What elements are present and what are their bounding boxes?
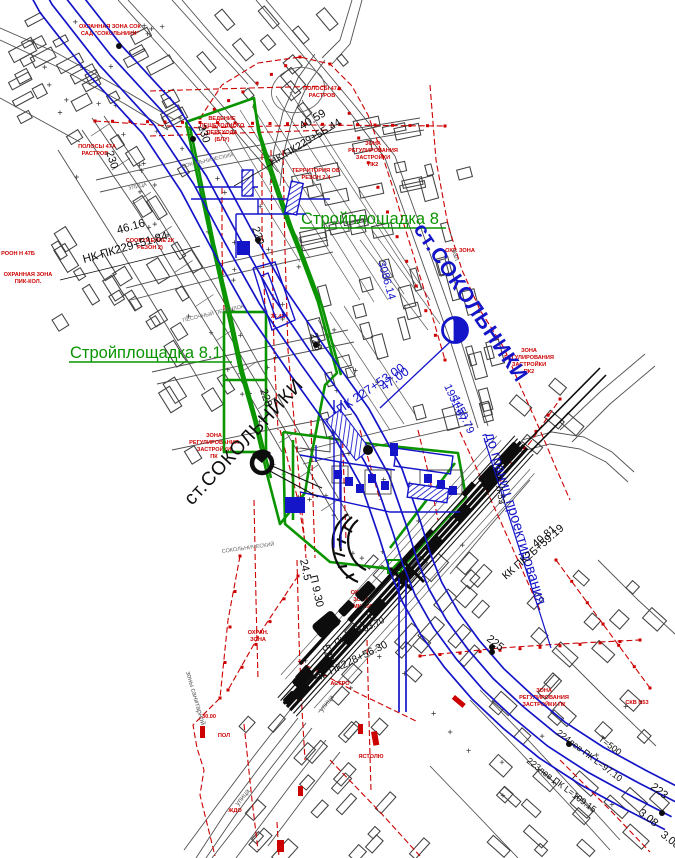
- svg-text:ВЕДЕНИЕ: ВЕДЕНИЕ: [208, 116, 236, 122]
- svg-text:РООН Н 47Б: РООН Н 47Б: [1, 251, 35, 257]
- svg-text:ЗОНА: ЗОНА: [206, 433, 222, 439]
- svg-text:Стройплощадка 8.1: Стройплощадка 8.1: [70, 344, 222, 362]
- svg-text:ЯСТОЛЮ: ЯСТОЛЮ: [358, 754, 383, 760]
- svg-text:РЕГУЛИРОВАНИЯ: РЕГУЛИРОВАНИЯ: [348, 148, 398, 154]
- svg-text:РЕГУЛИРОВАНИЯ: РЕГУЛИРОВАНИЯ: [519, 695, 569, 701]
- svg-text:ЗАСТРОЙКИ ПК: ЗАСТРОЙКИ ПК: [522, 700, 566, 708]
- svg-text:АСТРО: АСТРО: [330, 681, 350, 687]
- svg-text:ЗОНА: ЗОНА: [521, 348, 537, 354]
- svg-text:(БЛУ): (БЛУ): [214, 137, 229, 143]
- svg-text:ПОЛОСЫ 47А: ПОЛОСЫ 47А: [78, 144, 116, 150]
- svg-text:РЕЗОН 2-4: РЕЗОН 2-4: [302, 175, 332, 181]
- svg-text:ЗОНА: ЗОНА: [250, 637, 266, 643]
- svg-text:ЗОНА: ЗОНА: [365, 141, 381, 147]
- svg-text:ПОЛОСЫ 47А: ПОЛОСЫ 47А: [303, 86, 341, 92]
- svg-text:ЖДО: ЖДО: [227, 808, 242, 814]
- svg-text:РАСТРОВ: РАСТРОВ: [309, 93, 336, 99]
- svg-text:ТЕРРИТОРИЯ ОБ: ТЕРРИТОРИЯ ОБ: [292, 168, 340, 174]
- svg-text:ОХРАННАЯ ЗОНА: ОХРАННАЯ ЗОНА: [4, 272, 53, 278]
- svg-text:ОХРАН.: ОХРАН.: [248, 630, 269, 636]
- svg-text:ЗОНА: ЗОНА: [536, 688, 552, 694]
- svg-text:ПИК-КОЛ.: ПИК-КОЛ.: [15, 279, 42, 285]
- svg-text:ПК2: ПК2: [368, 162, 379, 168]
- svg-text:СКВ N53: СКВ N53: [625, 700, 648, 706]
- svg-text:ЗАСТРОЙКИ: ЗАСТРОЙКИ: [356, 153, 390, 161]
- svg-text:ПОЛ: ПОЛ: [218, 733, 230, 739]
